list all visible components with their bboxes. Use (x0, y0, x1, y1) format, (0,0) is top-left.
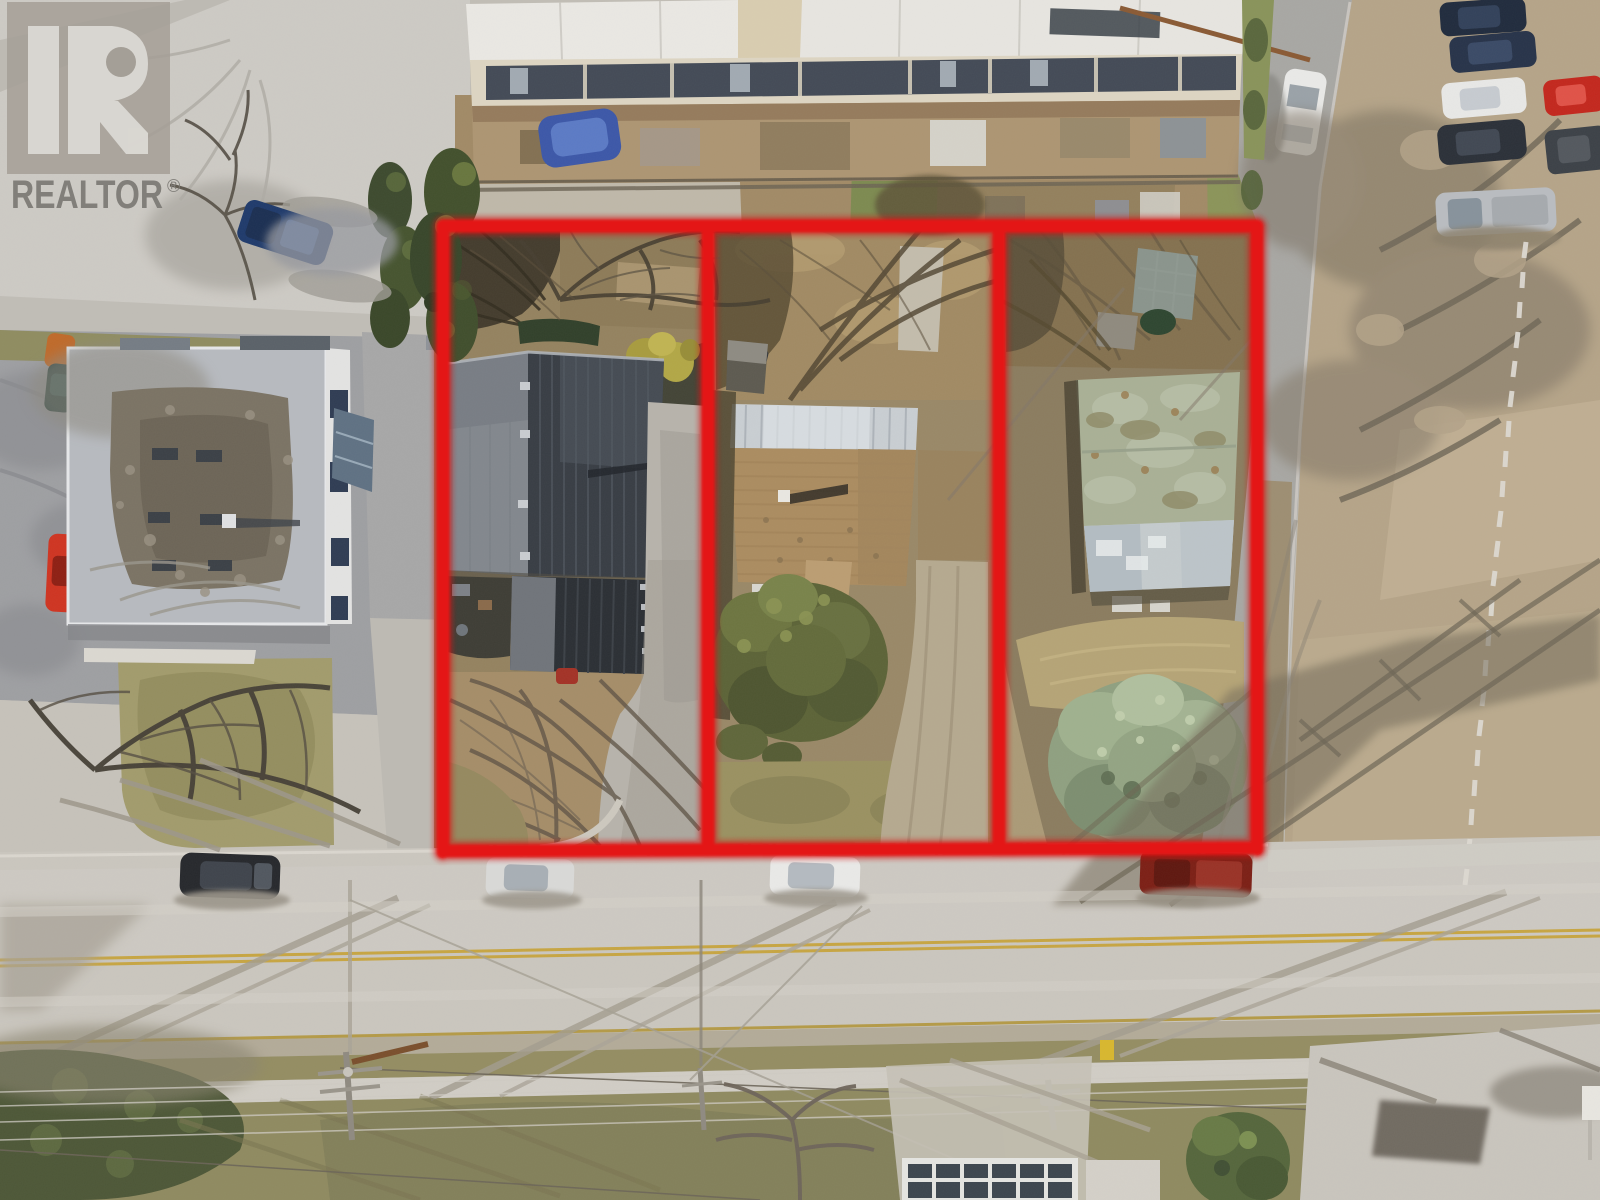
svg-text:REALTOR: REALTOR (11, 173, 163, 217)
svg-text:®: ® (167, 176, 180, 196)
